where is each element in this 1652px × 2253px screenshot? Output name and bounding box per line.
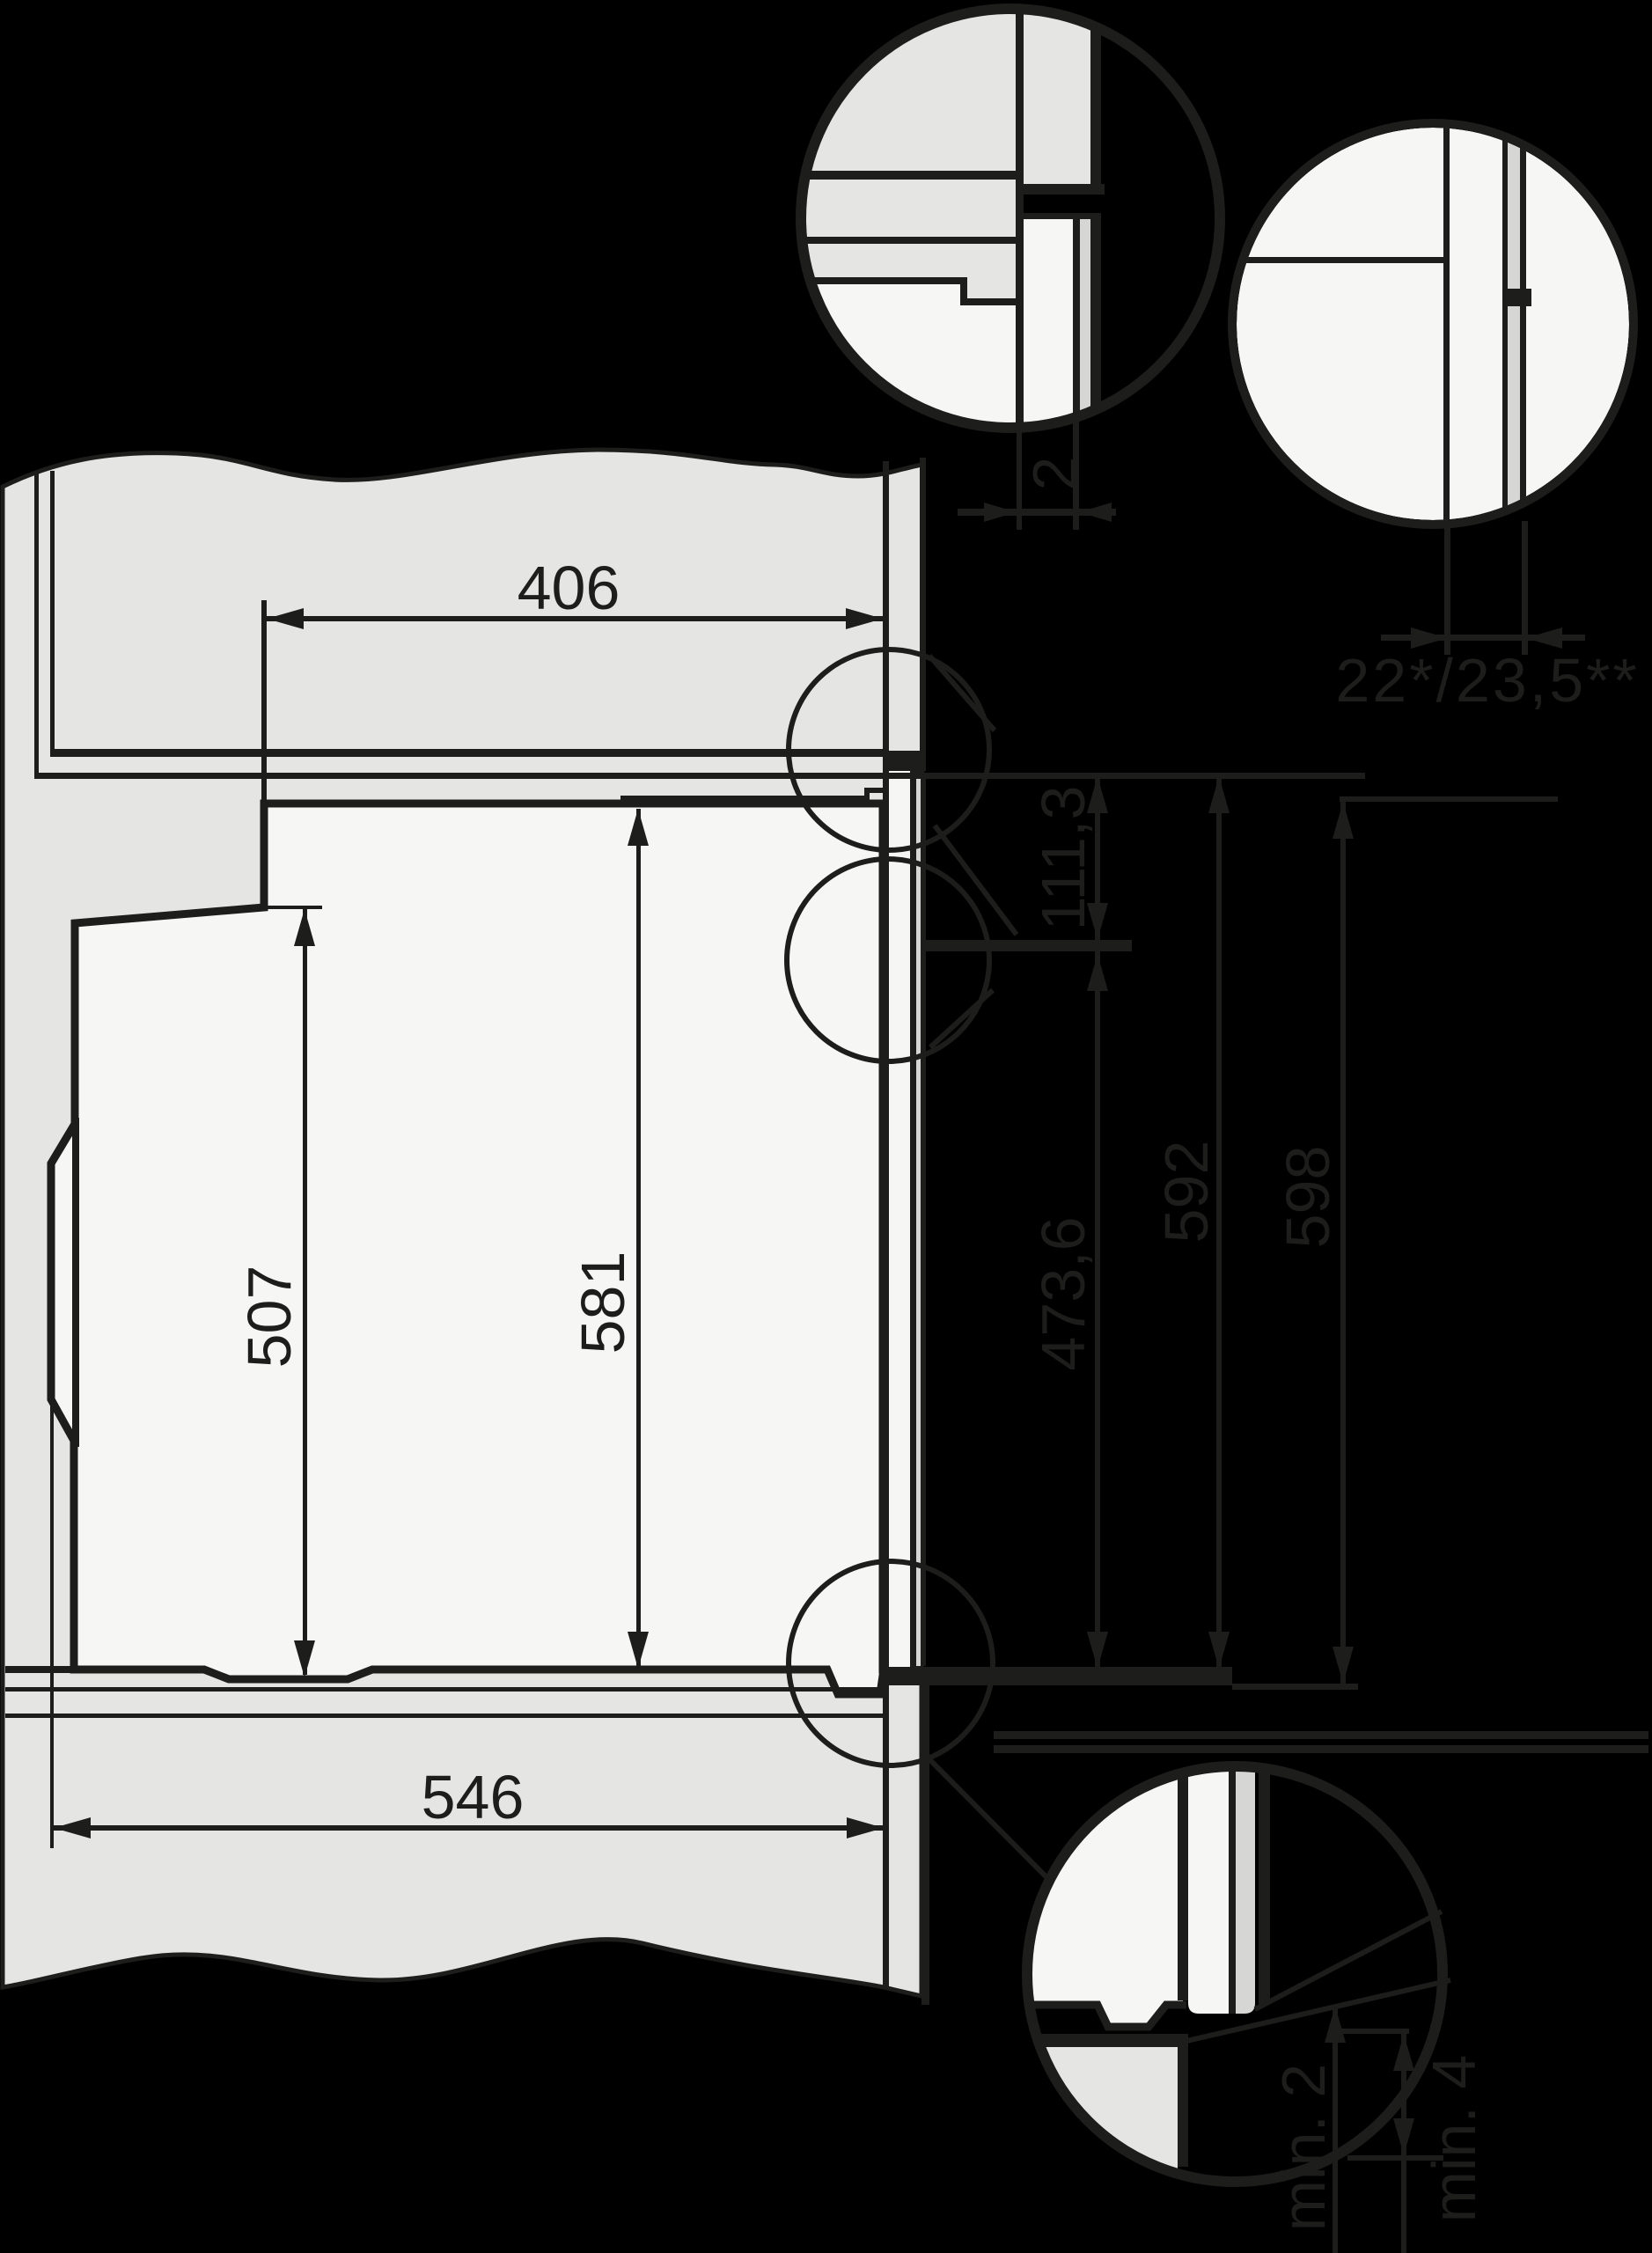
svg-text:473,6: 473,6 (1029, 1216, 1098, 1370)
svg-text:598: 598 (1274, 1146, 1342, 1249)
svg-text:406: 406 (518, 554, 620, 622)
svg-text:min. 4: min. 4 (1420, 2055, 1488, 2223)
svg-text:507: 507 (235, 1266, 304, 1369)
svg-text:546: 546 (422, 1763, 525, 1831)
svg-text:2: 2 (1020, 457, 1089, 491)
svg-text:111,3: 111,3 (1029, 786, 1098, 931)
svg-text:min. 2: min. 2 (1269, 2064, 1338, 2232)
svg-text:22*/23,5**: 22*/23,5** (1335, 646, 1639, 715)
svg-text:592: 592 (1152, 1141, 1221, 1244)
svg-text:581: 581 (569, 1251, 637, 1354)
